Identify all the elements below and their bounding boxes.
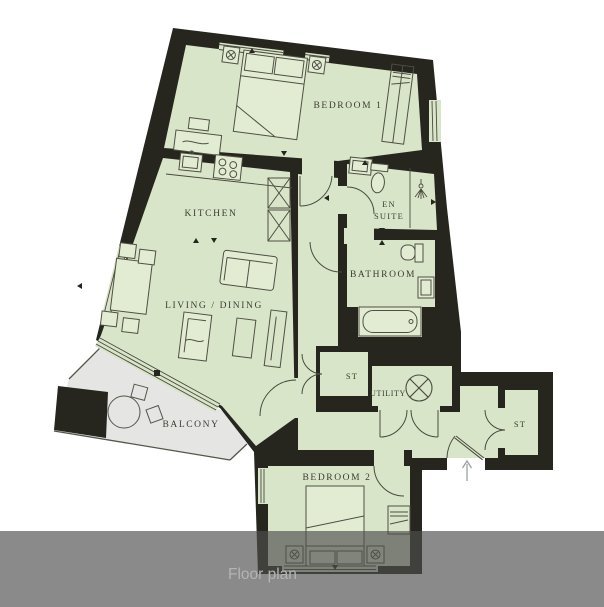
bathtub (359, 307, 421, 336)
sofa (220, 250, 278, 291)
hob-icon (213, 155, 242, 181)
caption-label: Floor plan (228, 566, 297, 584)
bedside-table-1a (222, 46, 240, 64)
floor-plan-page: BEDROOM 1 KITCHEN LIVING / DINING EN SUI… (0, 0, 604, 607)
balcony-wall (54, 386, 108, 438)
double-bed-1 (233, 50, 307, 140)
ensuite-basin (349, 157, 373, 175)
bedroom2-door-opening (374, 448, 404, 468)
ensuite-label-line2: SUITE (374, 211, 404, 221)
caption-bar (0, 531, 604, 607)
bathroom-basin (418, 277, 434, 298)
bedroom1-door-opening (302, 153, 334, 180)
bedside-table-1b (308, 56, 326, 74)
armchair (178, 312, 211, 361)
bathroom-label: BATHROOM (350, 270, 416, 280)
storage1-label: ST (346, 371, 358, 381)
room-storage1-floor (320, 352, 368, 396)
living-dining-label: LIVING / DINING (165, 301, 263, 311)
entrance-opening (447, 458, 485, 471)
room-utility-floor (372, 366, 452, 406)
kitchen-label: KITCHEN (185, 209, 238, 219)
bedroom1-label: BEDROOM 1 (313, 101, 382, 111)
bedroom1-side-window (429, 100, 441, 142)
storage2-label: ST (514, 419, 526, 429)
ensuite-door-opening (336, 186, 349, 214)
ensuite-label-line1: EN (382, 199, 396, 209)
floor-plan-drawing: BEDROOM 1 KITCHEN LIVING / DINING EN SUI… (0, 0, 604, 607)
bedroom2-label: BEDROOM 2 (302, 473, 371, 483)
utility-door-opening (378, 402, 440, 416)
storage2-door-opening (496, 408, 507, 448)
living-door-opening (288, 378, 302, 418)
bedroom2-side-window (258, 468, 268, 504)
bathroom-toilet (401, 244, 423, 262)
utility-label: UTILITY (370, 389, 406, 398)
bathroom-door-opening (344, 228, 374, 244)
balcony-label: BALCONY (162, 420, 219, 430)
